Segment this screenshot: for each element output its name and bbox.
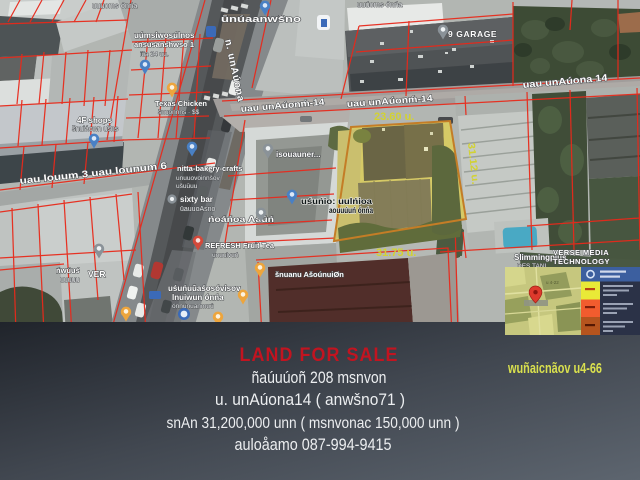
svg-text:šnuonnns · $$: šnuonnns · $$ — [158, 109, 200, 116]
svg-text:ónnúnuanmuú: ónnúnuanmuú — [172, 303, 214, 310]
svg-text:23.60 u.: 23.60 u. — [374, 111, 414, 123]
svg-text:REFRESH Fruit Tea: REFRESH Fruit Tea — [205, 241, 275, 250]
svg-text:TECHNOLOGY: TECHNOLOGY — [553, 257, 610, 266]
svg-text:aouuúuń ónńa: aouuúuń ónńa — [329, 205, 373, 215]
svg-text:isouauner...: isouauner... — [276, 150, 320, 159]
svg-text:lnuiwun ónńa: lnuiwun ónńa — [172, 293, 224, 302]
svg-text:Texas Chicken: Texas Chicken — [155, 99, 207, 108]
svg-text:wuñaicnãov u4-66: wuñaicnãov u4-66 — [507, 360, 602, 377]
svg-text:snAn 31,200,000 unn ( msnvonac: snAn 31,200,000 unn ( msnvonac 150,000 u… — [167, 415, 460, 432]
svg-text:ušuūuu: ušuūuu — [176, 183, 198, 190]
svg-text:uuuoms ónńa: uuuoms ónńa — [92, 1, 138, 10]
svg-text:uúmsiwosúlnos: uúmsiwosúlnos — [134, 31, 195, 40]
svg-text:unuuovoinnšov: unuuovoinnšov — [176, 175, 220, 182]
svg-text:VER: VER — [88, 269, 105, 279]
svg-text:u. unAúona14 ( anwšno71 ): u. unAúona14 ( anwšno71 ) — [215, 390, 405, 409]
svg-text:nitta-bakery-crafts: nitta-bakery-crafts — [177, 164, 242, 173]
svg-text:uuúoms ónńa: uuúoms ónńa — [357, 0, 403, 9]
svg-text:šnuiáown ušns: šnuiáown ušns — [72, 126, 119, 133]
svg-text:ūauuoAsno: ūauuoAsno — [180, 206, 216, 213]
svg-text:9 GARAGE: 9 GARAGE — [448, 29, 497, 39]
svg-text:iūa 24 uu.: iūa 24 uu. — [140, 51, 169, 58]
svg-text:uśuńuūaśosóvisov: uśuńuūaśosóvisov — [168, 284, 241, 293]
svg-text:ñaúuúoñ 208 msnvon: ñaúuúoñ 208 msnvon — [252, 368, 387, 387]
svg-text:31.75 u.: 31.75 u. — [376, 247, 416, 259]
svg-text:unuulvuń: unuulvuń — [212, 252, 239, 259]
svg-text:u 4-22: u 4-22 — [546, 280, 559, 285]
svg-text:ansusanshwso 1: ansusanshwso 1 — [134, 40, 194, 49]
svg-text:ńwúuś: ńwúuś — [56, 266, 80, 275]
svg-text:auloåamo 087-994-9415: auloåamo 087-994-9415 — [235, 435, 392, 454]
svg-text:LAND FOR SALE: LAND FOR SALE — [240, 344, 399, 366]
svg-text:ūnúaanwšno: ūnúaanwšno — [221, 14, 302, 24]
svg-text:šnuanu AšoúnuiØn: šnuanu AšoúnuiØn — [275, 270, 344, 279]
svg-text:sixty bar: sixty bar — [180, 195, 213, 204]
svg-text:uuuuu: uuuuu — [60, 277, 80, 284]
svg-text:4F shops: 4F shops — [77, 116, 113, 125]
svg-text:VERSE MEDIA: VERSE MEDIA — [553, 248, 609, 257]
